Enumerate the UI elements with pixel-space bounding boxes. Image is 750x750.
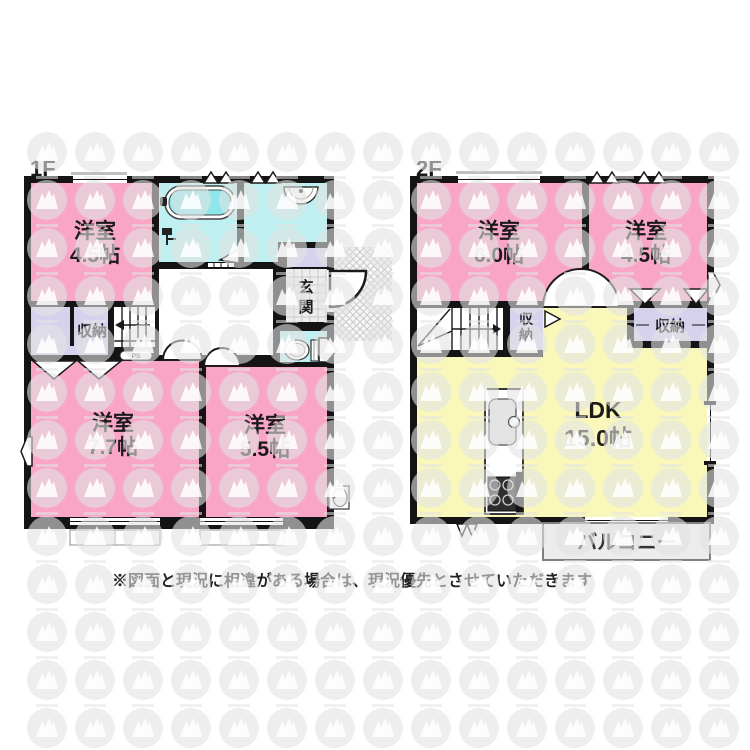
watermark-layer xyxy=(27,132,739,750)
floor-plan-image: 1F 収納 PS xyxy=(0,0,750,750)
